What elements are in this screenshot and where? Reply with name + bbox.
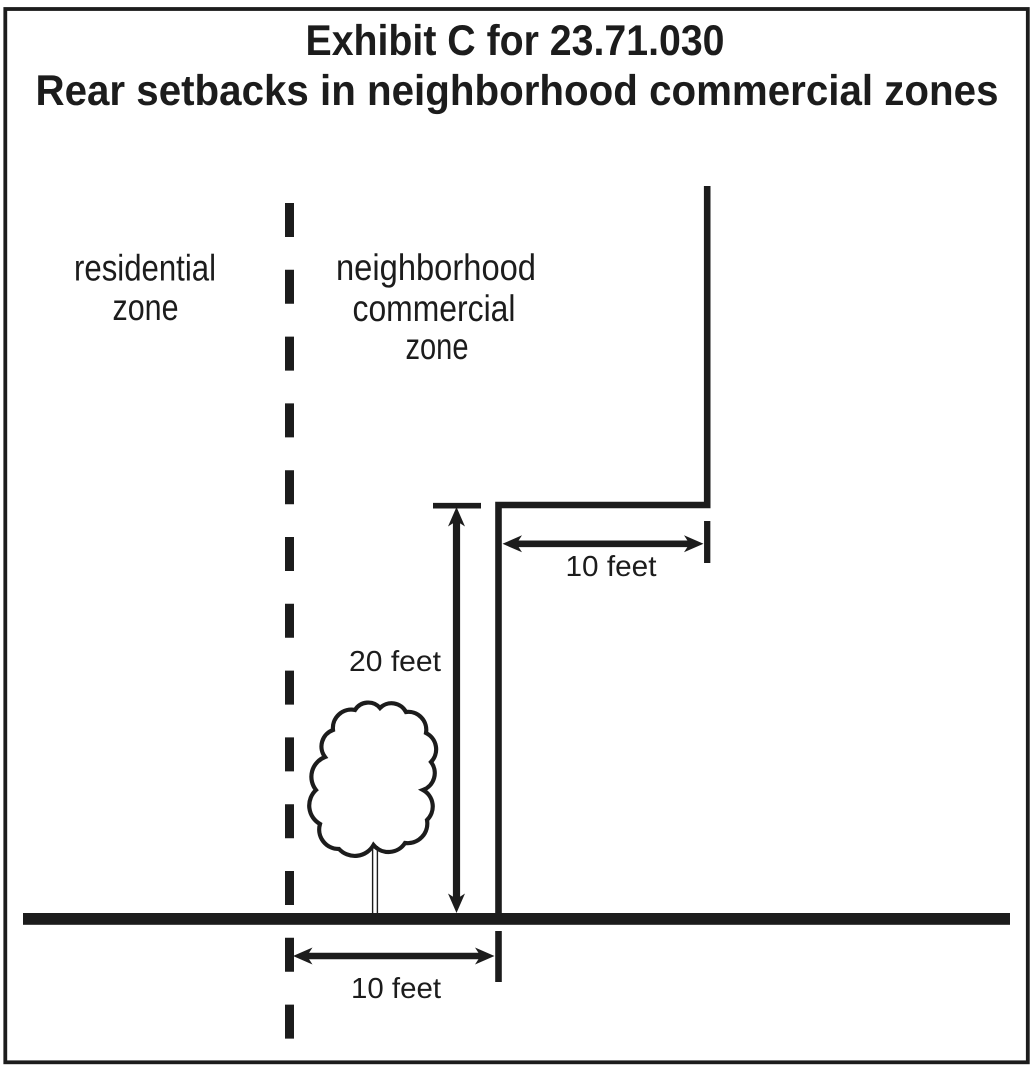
svg-text:10 feet: 10 feet xyxy=(351,973,441,1005)
svg-text:20 feet: 20 feet xyxy=(349,646,441,678)
svg-text:10 feet: 10 feet xyxy=(566,551,657,583)
svg-text:zone: zone xyxy=(406,326,469,367)
svg-text:Exhibit C for 23.71.030: Exhibit C for 23.71.030 xyxy=(306,17,725,65)
svg-text:commercial: commercial xyxy=(353,288,516,329)
svg-text:neighborhood: neighborhood xyxy=(336,247,536,288)
svg-text:residential: residential xyxy=(74,248,216,289)
svg-text:Rear setbacks in neighborhood: Rear setbacks in neighborhood commercial… xyxy=(36,67,999,115)
svg-text:zone: zone xyxy=(113,287,179,328)
